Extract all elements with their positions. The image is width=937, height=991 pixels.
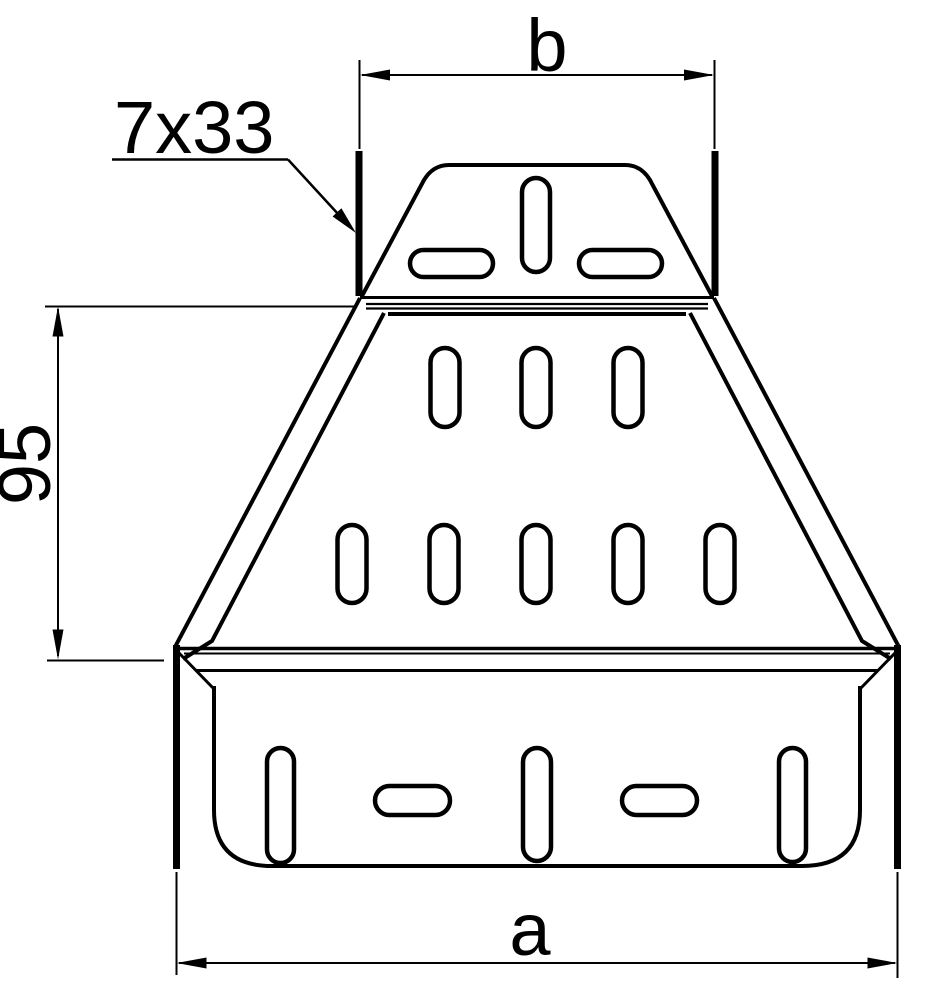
dimension-b: b (360, 4, 715, 149)
bottom-slot-vertical-center (523, 748, 551, 861)
top-section (359, 151, 715, 296)
middle-section (175, 298, 899, 659)
cable-tray-reducer-drawing: b 7x33 95 (0, 0, 937, 991)
slot-callout-label: 7x33 (114, 86, 274, 169)
dim-a-label: a (509, 888, 551, 971)
top-slot-horizontal-right (579, 250, 662, 277)
middle-slope-inner-right (690, 313, 891, 659)
middle-slot-row2-5 (706, 525, 735, 603)
dim-b-arrowhead-right-icon (684, 70, 714, 81)
middle-slot-row2-2 (430, 525, 459, 603)
bottom-slot-vertical-right (779, 748, 806, 862)
dimension-95: 95 (0, 307, 357, 661)
middle-slot-row2-3 (522, 525, 551, 603)
middle-slot-row1-2 (522, 348, 551, 427)
top-slot-vertical-center (522, 178, 550, 272)
dim-95-label: 95 (0, 423, 66, 505)
dim-a-arrowhead-right-icon (868, 958, 898, 969)
dim-b-arrowhead-left-icon (360, 70, 390, 81)
bottom-slot-horizontal-left (375, 786, 450, 815)
dim-b-label: b (526, 4, 567, 87)
middle-slot-row2-1 (338, 525, 367, 603)
bottom-web-outline (214, 686, 860, 866)
middle-slot-row2-4 (614, 525, 643, 603)
bottom-slot-vertical-left (267, 748, 294, 863)
top-slot-horizontal-left (410, 250, 493, 277)
top-seam (360, 298, 714, 315)
bottom-slot-horizontal-right (622, 786, 697, 815)
dim-95-arrowhead-bottom-icon (53, 630, 64, 660)
dimension-a: a (177, 872, 898, 978)
dim-a-arrowhead-left-icon (177, 958, 207, 969)
middle-slope-outer-right (714, 298, 899, 647)
dim-95-arrowhead-top-icon (53, 307, 64, 337)
slot-callout: 7x33 (112, 86, 356, 233)
middle-slot-row1-3 (614, 348, 643, 427)
middle-slot-row1-1 (431, 348, 460, 427)
bottom-section (177, 645, 898, 869)
drawing-canvas: b 7x33 95 (0, 0, 937, 991)
middle-slope-outer-left (175, 298, 360, 647)
middle-slope-inner-left (183, 313, 384, 659)
